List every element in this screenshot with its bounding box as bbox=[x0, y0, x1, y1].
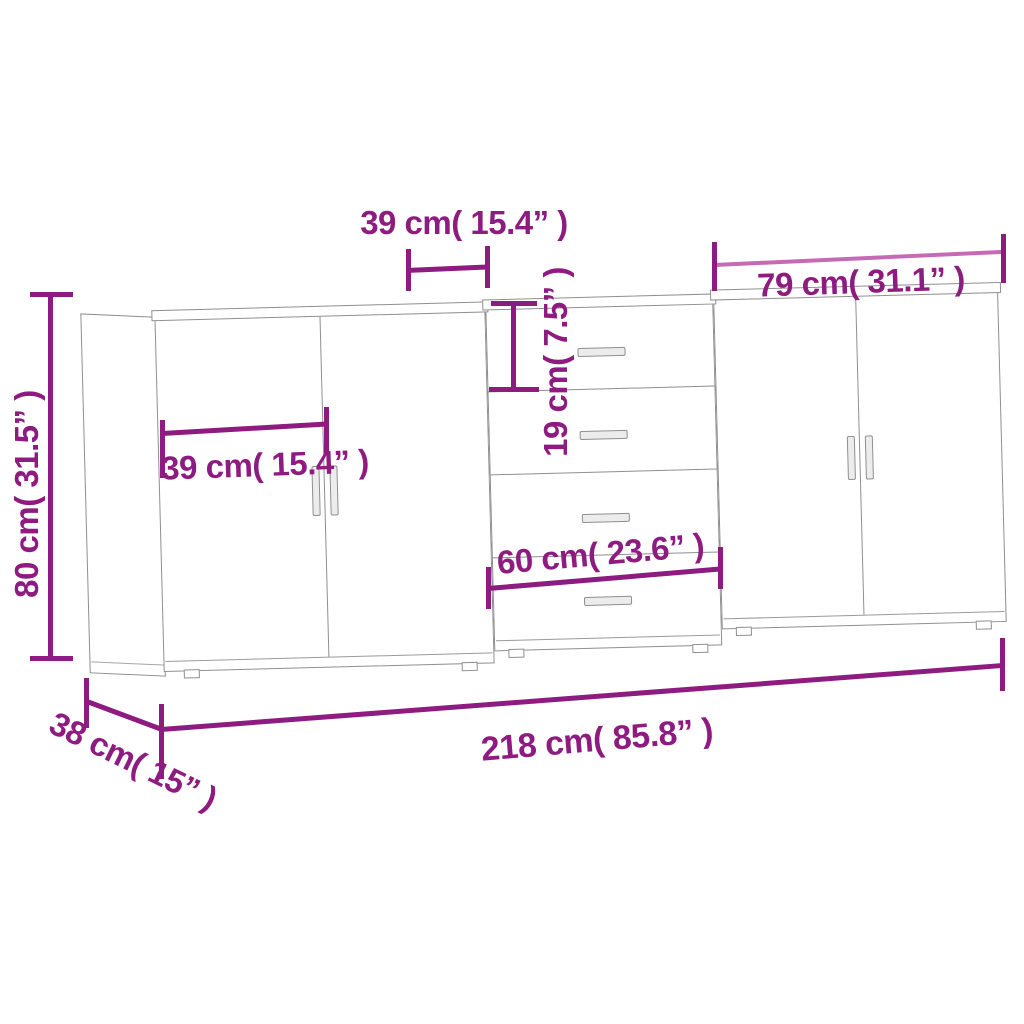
cabinet-right-door-right bbox=[855, 292, 1005, 615]
cabinet-middle bbox=[485, 294, 722, 652]
cabinet-left bbox=[154, 301, 494, 672]
dim-line-height bbox=[48, 295, 53, 658]
dim-label-drawer-height: 19 cm( 7.5” ) bbox=[538, 262, 574, 462]
dim-label-height: 80 cm( 31.5” ) bbox=[9, 390, 45, 598]
dim-tick bbox=[489, 387, 539, 392]
cabinet-foot bbox=[462, 662, 478, 671]
dim-tick bbox=[491, 301, 537, 306]
drawer-handle bbox=[582, 513, 630, 523]
side-plinth-line bbox=[91, 661, 163, 665]
cabinet-foot bbox=[736, 627, 752, 636]
left-side-panel bbox=[80, 313, 166, 676]
door-handle bbox=[846, 436, 855, 480]
door-handle bbox=[864, 435, 873, 479]
cabinet-foot bbox=[184, 669, 200, 678]
drawer-1 bbox=[486, 304, 714, 392]
cabinet-left-door-right bbox=[319, 312, 493, 657]
cabinet-middle-body bbox=[485, 303, 722, 652]
cabinet-left-door-left bbox=[156, 316, 329, 661]
cabinet-foot bbox=[692, 644, 708, 653]
dim-label-total-width: 218 cm( 85.8” ) bbox=[451, 710, 743, 772]
drawer-2 bbox=[489, 386, 717, 475]
dim-line-top-door-width bbox=[406, 264, 487, 273]
cabinet-right bbox=[713, 282, 1007, 629]
dim-tick bbox=[406, 249, 411, 291]
drawer-handle bbox=[580, 430, 628, 440]
cabinet-right-door-left bbox=[714, 296, 863, 619]
dim-tick bbox=[1000, 638, 1005, 691]
cabinet-right-body bbox=[713, 291, 1007, 629]
drawer-handle bbox=[577, 347, 625, 357]
dim-line-drawer-height bbox=[511, 304, 516, 392]
dim-tick bbox=[30, 656, 73, 661]
dim-tick bbox=[1001, 234, 1006, 283]
cabinet-foot bbox=[976, 620, 992, 629]
drawer-handle bbox=[584, 596, 632, 606]
dim-label-top-door-width: 39 cm( 15.4” ) bbox=[339, 205, 589, 241]
dim-tick bbox=[485, 246, 490, 288]
dim-tick bbox=[712, 242, 717, 291]
dim-tick bbox=[30, 292, 73, 297]
product-dimension-image: 39 cm( 15.4” ) 79 cm( 31.1” ) 80 cm( 31.… bbox=[0, 0, 1024, 1024]
cabinet-foot bbox=[508, 649, 524, 658]
cabinet-left-body bbox=[154, 310, 494, 672]
